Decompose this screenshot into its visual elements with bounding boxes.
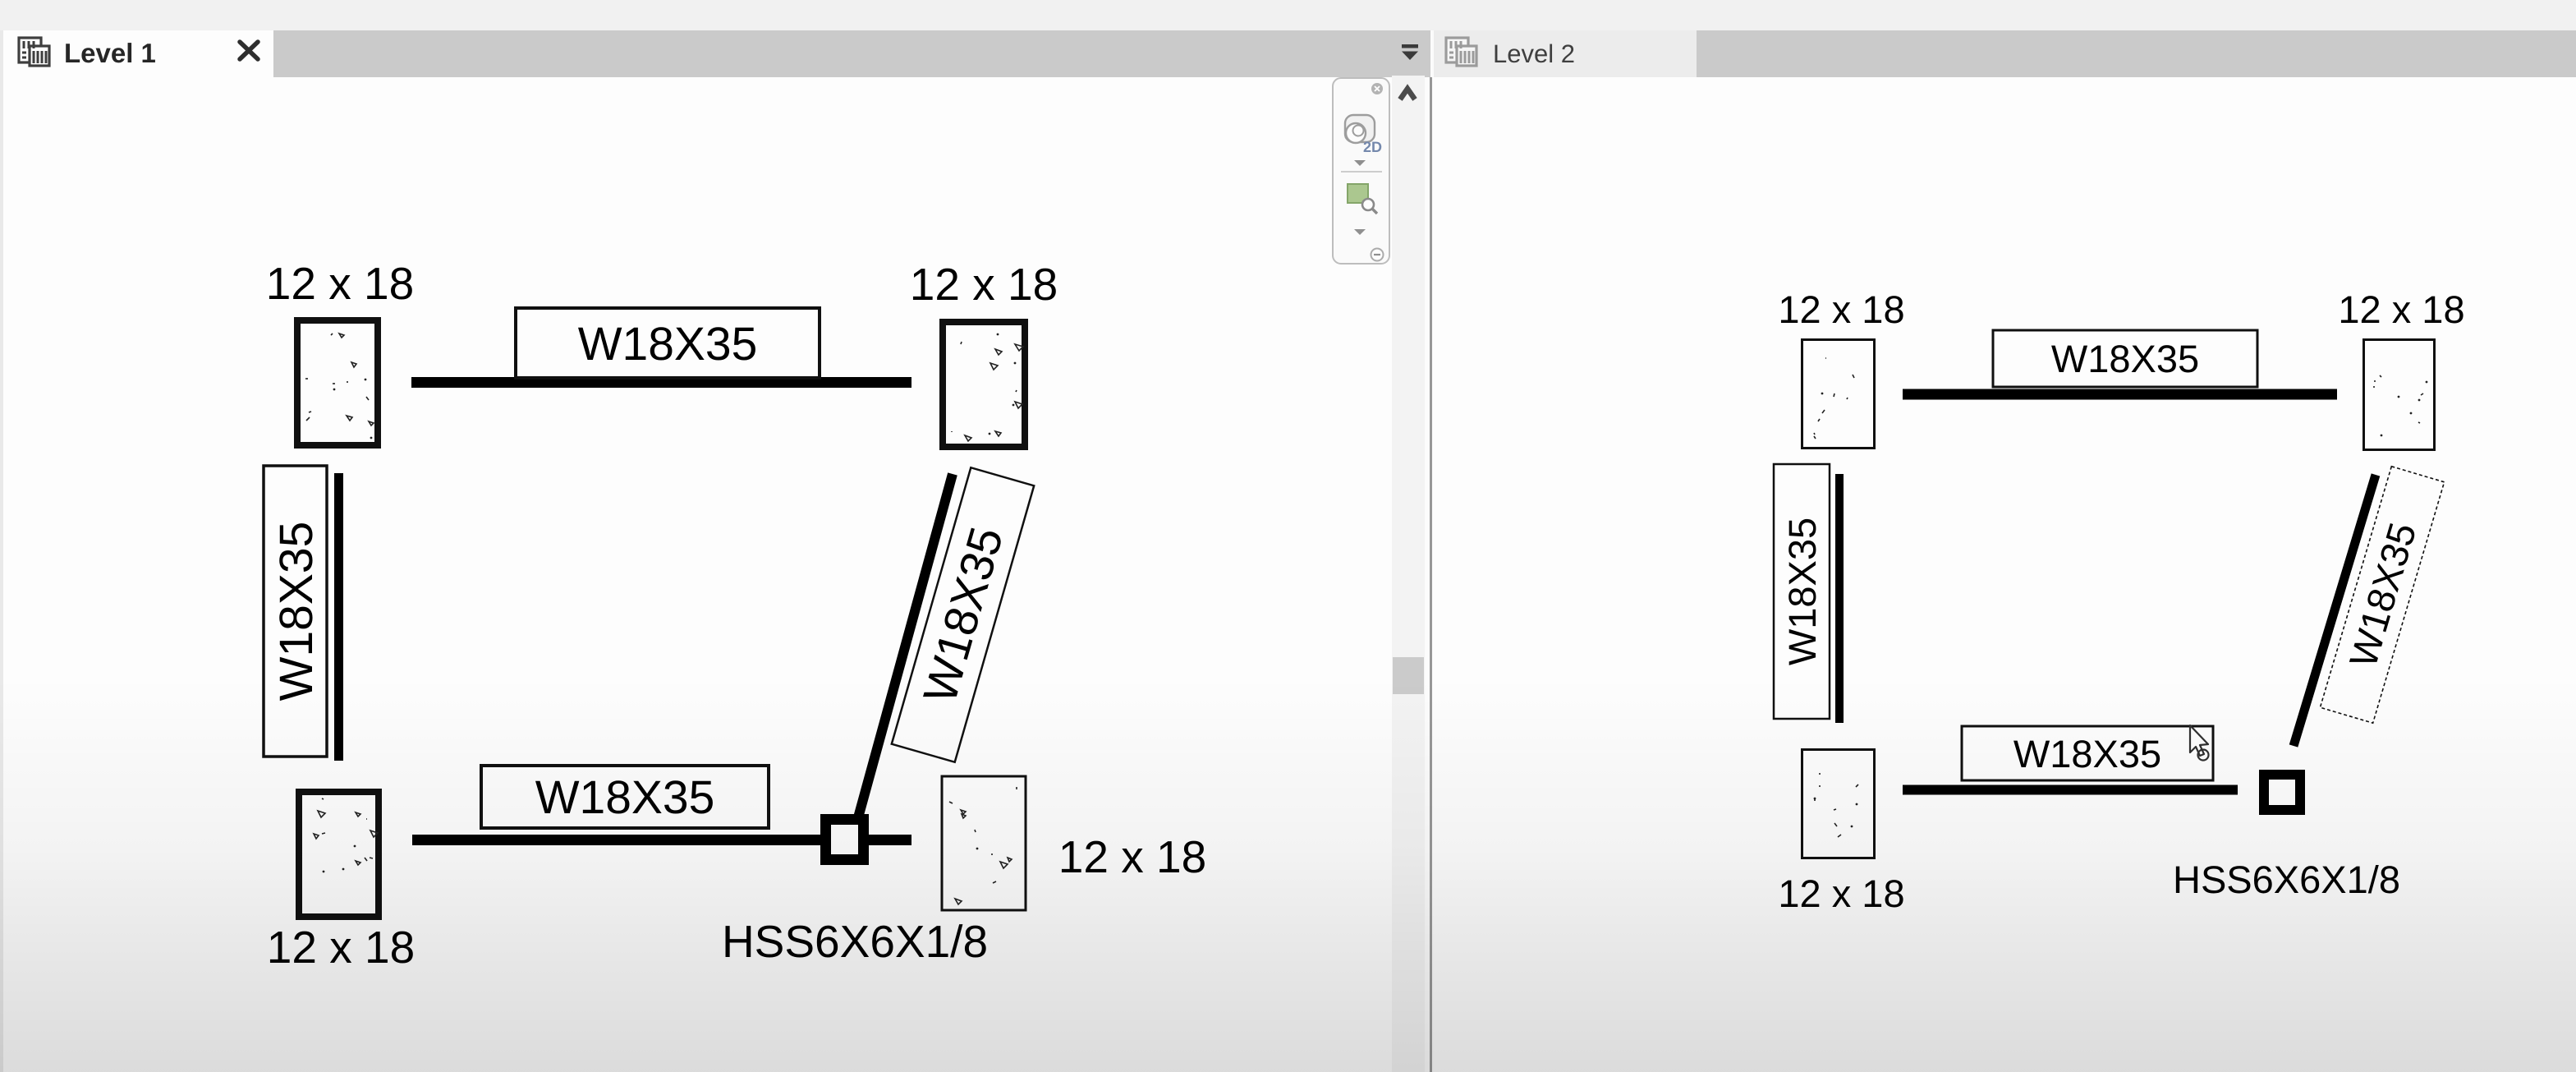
svg-text:12 x 18: 12 x 18 xyxy=(1058,831,1206,882)
svg-text:12 x 18: 12 x 18 xyxy=(267,922,415,973)
svg-text:W18X35: W18X35 xyxy=(578,318,758,370)
svg-text:12 x 18: 12 x 18 xyxy=(1778,872,1904,915)
svg-text:HSS6X6X1/8: HSS6X6X1/8 xyxy=(2173,858,2400,901)
svg-text:12 x 18: 12 x 18 xyxy=(266,258,414,309)
svg-text:Level 1: Level 1 xyxy=(64,38,156,68)
svg-text:Level 2: Level 2 xyxy=(1493,39,1575,68)
svg-text:2D: 2D xyxy=(1363,139,1382,155)
svg-text:W18X35: W18X35 xyxy=(270,522,323,702)
svg-text:12 x 18: 12 x 18 xyxy=(2338,288,2464,331)
svg-text:W18X35: W18X35 xyxy=(1780,518,1824,665)
svg-text:W18X35: W18X35 xyxy=(2014,732,2161,775)
svg-text:W18X35: W18X35 xyxy=(535,771,715,824)
svg-text:HSS6X6X1/8: HSS6X6X1/8 xyxy=(722,916,988,967)
svg-text:12 x 18: 12 x 18 xyxy=(910,259,1058,310)
svg-text:12 x 18: 12 x 18 xyxy=(1778,288,1904,331)
svg-text:W18X35: W18X35 xyxy=(2051,337,2199,380)
